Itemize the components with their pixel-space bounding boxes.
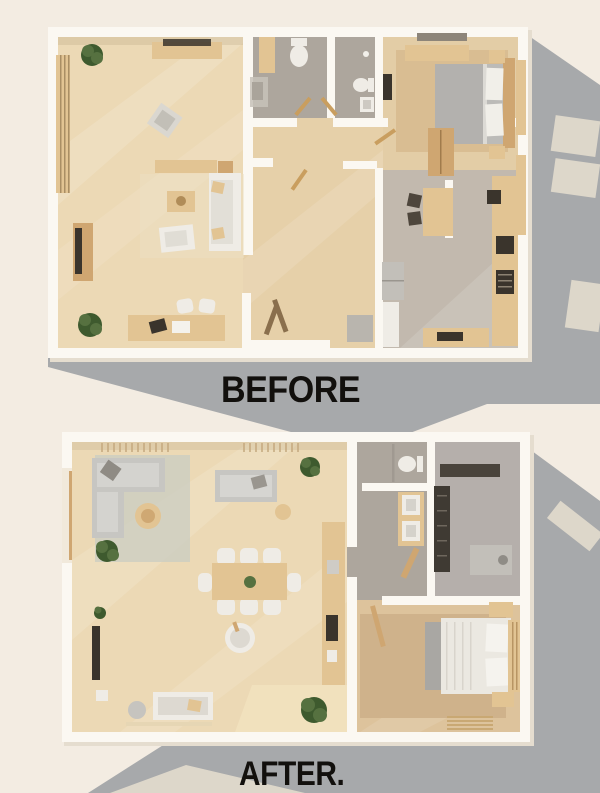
after-floor-plan xyxy=(62,432,534,746)
tv-screen xyxy=(92,626,100,680)
dining-chair xyxy=(217,598,235,615)
kitchen-sink xyxy=(327,560,339,574)
dresser xyxy=(405,45,469,61)
plant xyxy=(300,457,320,477)
oven-grate xyxy=(496,270,514,294)
tall-cabinet xyxy=(434,486,450,572)
dining-chair xyxy=(263,548,281,565)
microwave xyxy=(487,190,501,204)
desk-chair xyxy=(198,298,216,314)
kitchen-platform xyxy=(235,685,347,732)
dining-chair xyxy=(287,573,301,592)
pillow xyxy=(485,104,504,137)
cabinet xyxy=(383,302,399,347)
nightstand xyxy=(489,602,513,617)
shower-head xyxy=(363,51,369,57)
window-frame xyxy=(56,55,70,193)
window-frame xyxy=(516,60,526,135)
stove xyxy=(496,236,514,254)
rug-edge xyxy=(126,722,212,726)
nightstand xyxy=(489,50,505,63)
wall-shelf-slab xyxy=(163,39,211,46)
media-shelf xyxy=(155,160,217,173)
wardrobe xyxy=(508,620,520,692)
window-frame xyxy=(69,471,72,560)
pillow xyxy=(485,68,503,101)
tv-screen xyxy=(383,74,392,100)
toilet xyxy=(290,45,308,67)
before-label: BEFORE xyxy=(221,371,360,408)
dark-counter xyxy=(440,464,500,477)
desk-papers xyxy=(172,321,190,333)
stove xyxy=(326,615,338,641)
tv-screen xyxy=(75,228,82,274)
throw-pillow xyxy=(187,699,202,712)
shower-glass xyxy=(392,444,395,482)
dining-chair xyxy=(198,573,212,592)
kitchen-table xyxy=(423,188,453,236)
chair xyxy=(407,211,422,226)
pillow xyxy=(485,657,508,686)
bed-bench xyxy=(425,622,441,690)
plant xyxy=(301,697,327,723)
before-after-poster: BEFORE AFTER. xyxy=(0,0,600,793)
dining-chair xyxy=(263,598,281,615)
toilet-tank xyxy=(417,456,423,472)
plant xyxy=(78,313,102,337)
dining-chair xyxy=(240,598,258,615)
sofa-pillow xyxy=(211,227,225,240)
shoe-cabinet xyxy=(347,315,373,342)
side-table xyxy=(275,504,291,520)
before-floor-plan xyxy=(48,27,532,362)
dining-chair xyxy=(217,548,235,565)
toilet-tank xyxy=(291,38,307,46)
pillow xyxy=(485,623,508,652)
table-bowl xyxy=(176,196,186,206)
small-appliance xyxy=(327,650,337,662)
centerpiece-plant xyxy=(244,576,256,588)
chair xyxy=(407,193,422,208)
dining-chair xyxy=(240,548,258,565)
toilet xyxy=(398,456,416,472)
washer-door xyxy=(498,555,508,565)
island-tray xyxy=(437,332,463,341)
after-label: AFTER. xyxy=(239,757,344,791)
plant xyxy=(81,44,103,66)
after-bedroom xyxy=(360,602,520,729)
headboard xyxy=(503,58,515,148)
toilet xyxy=(353,78,369,92)
nightstand xyxy=(489,146,505,159)
ac-vent xyxy=(417,33,467,41)
nightstand xyxy=(492,692,514,707)
bath-cabinet xyxy=(259,37,275,73)
media-cabinet xyxy=(96,690,108,701)
shelf-box xyxy=(218,161,233,174)
pouf xyxy=(128,701,146,719)
